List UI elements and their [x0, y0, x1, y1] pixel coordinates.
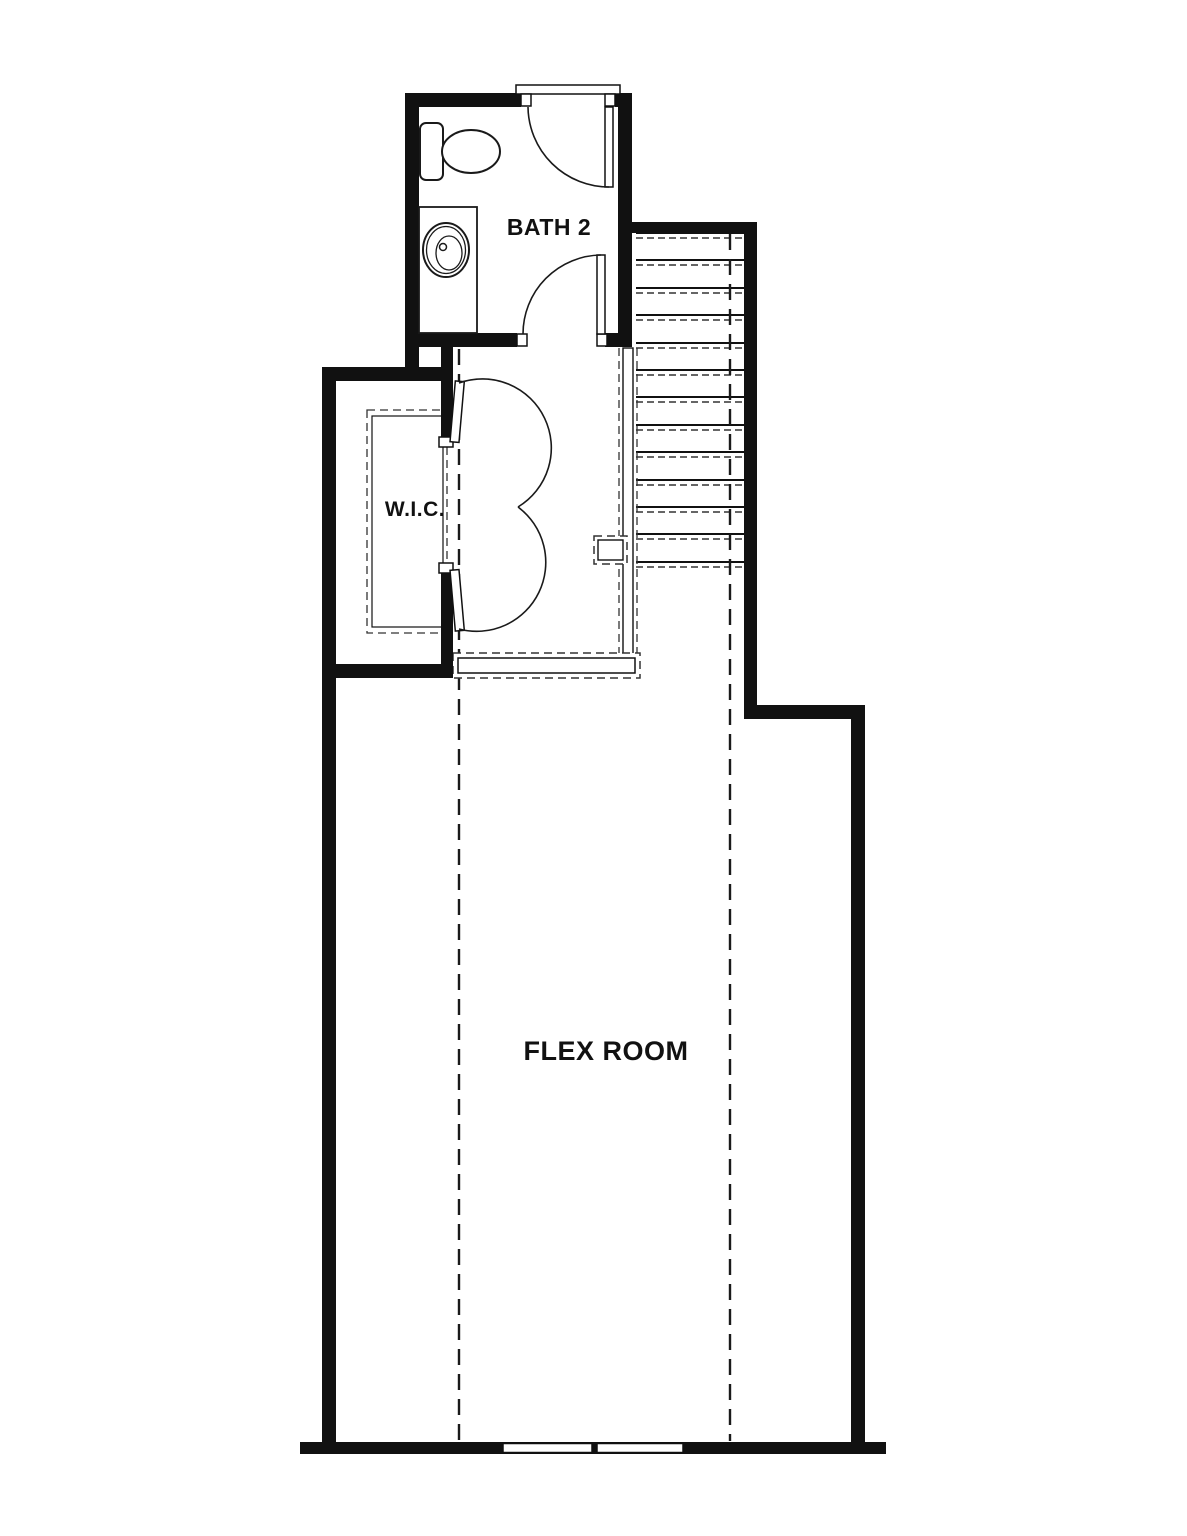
flex-step-wall [744, 705, 865, 719]
bath-right-wall [618, 93, 632, 347]
plan-background [0, 0, 1187, 1536]
hall-edge-dashed-band [453, 653, 640, 678]
door-head-frame [516, 85, 620, 94]
door-jamb [597, 334, 607, 346]
bath-bottom-wall-right [605, 333, 632, 347]
flex-right-wall [851, 705, 865, 1454]
door-leaf [597, 255, 605, 334]
bath2-label: BATH 2 [507, 214, 591, 240]
window-right [597, 1444, 683, 1453]
left-wall [322, 367, 336, 1454]
stair-top-wall [632, 222, 757, 233]
door-jamb [517, 334, 527, 346]
bath-wic-stub-right [441, 347, 453, 381]
bath-wic-stub-left [405, 347, 419, 367]
door-leaf [605, 107, 613, 187]
sink-vanity [419, 207, 477, 333]
bath-top-wall-left [405, 93, 521, 107]
door-jamb [521, 94, 531, 106]
toilet-tank [420, 123, 443, 180]
flex-room-label: FLEX ROOM [524, 1036, 689, 1066]
stair-right-wall [744, 222, 757, 719]
wic-bottom-wall [322, 664, 453, 678]
toilet-bowl [442, 130, 500, 173]
railing-foot [598, 540, 623, 560]
door-jamb [605, 94, 615, 106]
wic-label: W.I.C. [385, 498, 445, 521]
window-left [503, 1444, 592, 1453]
wic-top-wall [322, 367, 453, 381]
bath-left-wall [405, 93, 419, 347]
sink-drain [440, 244, 447, 251]
hall-floor-edge [453, 653, 640, 678]
bath-bottom-wall-left [405, 333, 517, 347]
flex-bottom-wall [300, 1442, 886, 1454]
floor-plan: BATH 2 W.I.C. FLEX ROOM [0, 0, 1187, 1536]
railing-wall [623, 348, 633, 658]
